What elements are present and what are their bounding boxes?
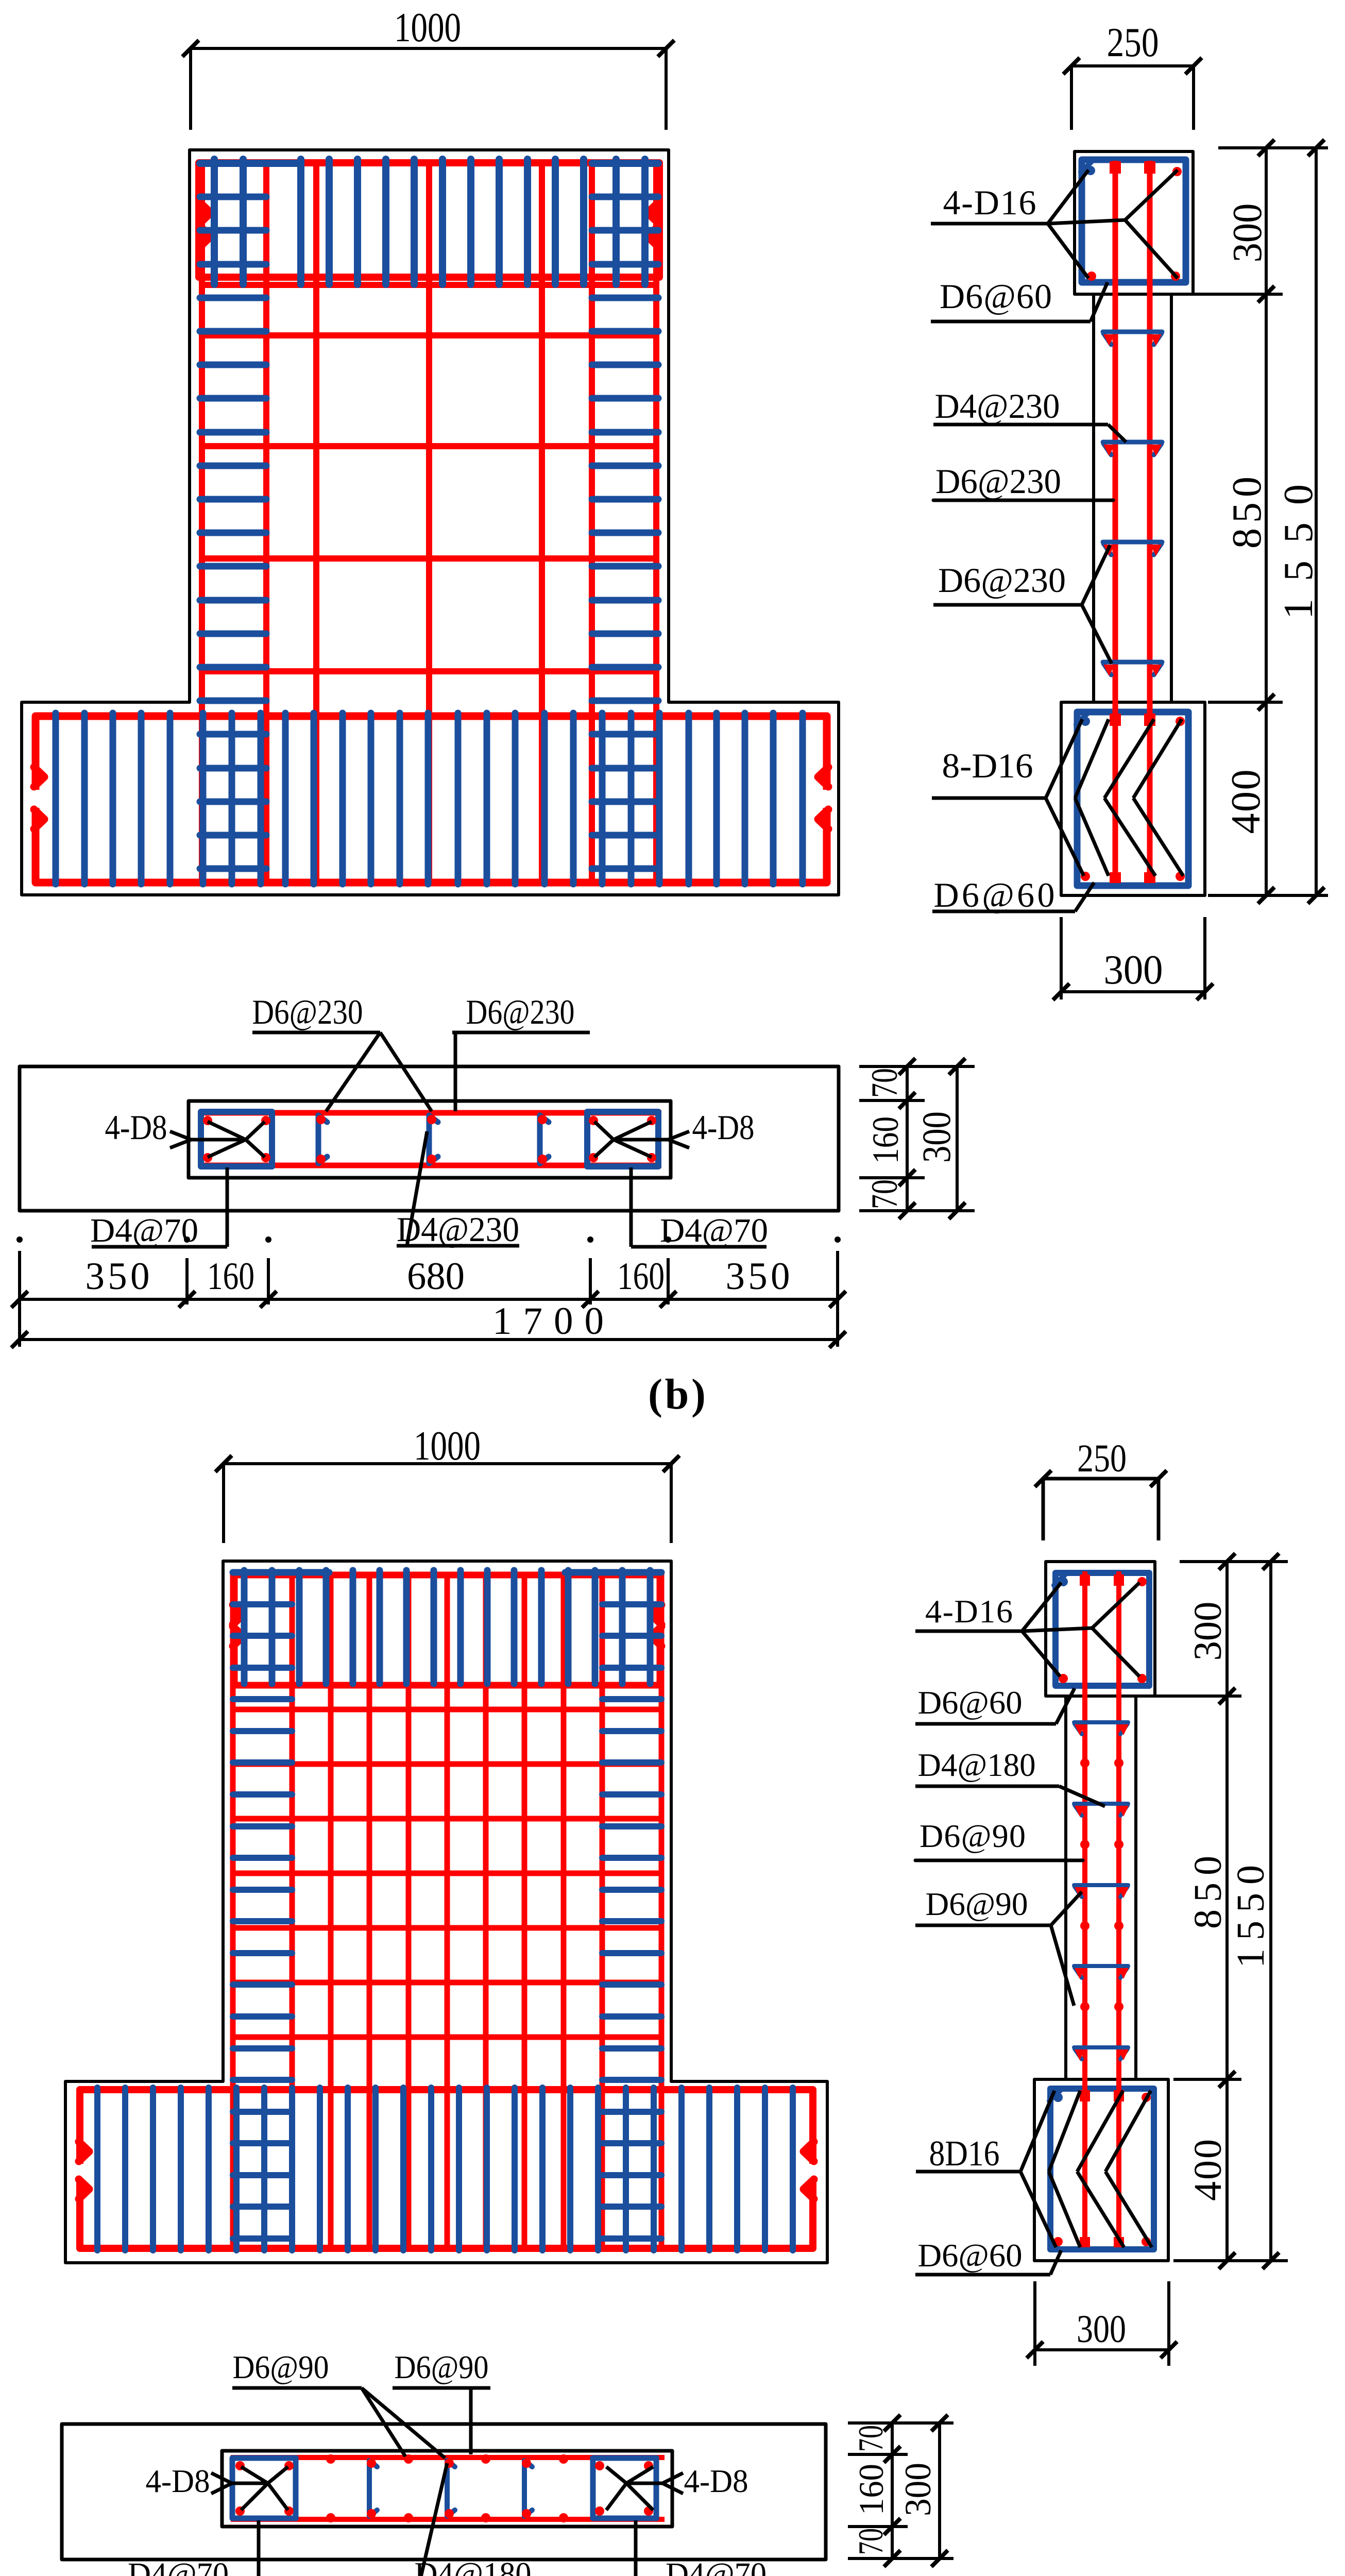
svg-text:4-D8: 4-D8: [692, 1108, 755, 1147]
svg-text:400: 400: [1186, 2139, 1230, 2201]
svg-text:D6@230: D6@230: [935, 462, 1061, 501]
svg-text:350: 350: [86, 1255, 150, 1298]
svg-text:300: 300: [1077, 2308, 1126, 2351]
svg-text:70: 70: [851, 2425, 890, 2452]
svg-text:250: 250: [1077, 1437, 1127, 1480]
svg-text:D6@60: D6@60: [918, 2237, 1023, 2274]
svg-text:(b): (b): [648, 1370, 706, 1418]
svg-text:8-D16: 8-D16: [942, 746, 1033, 785]
svg-text:70: 70: [851, 2528, 890, 2555]
svg-text:4-D8: 4-D8: [684, 2463, 748, 2499]
svg-text:300: 300: [1225, 204, 1270, 263]
svg-text:1000: 1000: [414, 1423, 481, 1469]
svg-text:D6@230: D6@230: [252, 992, 363, 1031]
svg-text:4-D8: 4-D8: [146, 2463, 210, 2499]
svg-text:160: 160: [617, 1255, 665, 1298]
svg-text:4-D16: 4-D16: [925, 1593, 1013, 1630]
svg-text:4-D16: 4-D16: [943, 183, 1036, 222]
svg-text:850: 850: [1186, 1856, 1230, 1929]
svg-text:D6@230: D6@230: [938, 561, 1066, 600]
svg-text:1000: 1000: [394, 5, 461, 50]
svg-text:8D16: 8D16: [929, 2134, 1000, 2174]
svg-text:300: 300: [1104, 947, 1163, 993]
svg-text:160: 160: [865, 1116, 906, 1164]
svg-text:D6@90: D6@90: [395, 2349, 489, 2385]
svg-text:D6@60: D6@60: [918, 1684, 1023, 1721]
svg-text:D6@90: D6@90: [926, 1886, 1028, 1922]
svg-text:D4@70: D4@70: [660, 1212, 768, 1249]
svg-text:850: 850: [1224, 477, 1270, 549]
svg-text:160: 160: [852, 2464, 891, 2515]
svg-text:300: 300: [1186, 1602, 1230, 1661]
svg-text:70: 70: [864, 1068, 905, 1098]
svg-text:300: 300: [914, 1111, 959, 1163]
svg-text:D6@90: D6@90: [233, 2349, 329, 2385]
svg-text:400: 400: [1223, 770, 1269, 834]
svg-text:D4@180: D4@180: [918, 1747, 1036, 1783]
svg-text:D4@70: D4@70: [666, 2557, 767, 2576]
svg-text:680: 680: [407, 1255, 465, 1298]
svg-text:160: 160: [207, 1255, 254, 1298]
svg-text:D4@230: D4@230: [397, 1210, 519, 1249]
svg-text:D4@230: D4@230: [935, 386, 1060, 426]
svg-text:D6@230: D6@230: [466, 992, 575, 1031]
svg-text:D4@70: D4@70: [128, 2557, 229, 2576]
svg-text:70: 70: [864, 1179, 905, 1209]
svg-text:D6@90: D6@90: [920, 1818, 1026, 1854]
svg-text:250: 250: [1107, 20, 1159, 65]
svg-text:D6@60: D6@60: [940, 277, 1052, 316]
svg-text:D4@180: D4@180: [415, 2555, 532, 2576]
svg-text:300: 300: [897, 2463, 939, 2516]
svg-text:350: 350: [726, 1255, 790, 1298]
svg-text:D4@70: D4@70: [90, 1212, 198, 1249]
svg-text:4-D8: 4-D8: [105, 1108, 167, 1147]
